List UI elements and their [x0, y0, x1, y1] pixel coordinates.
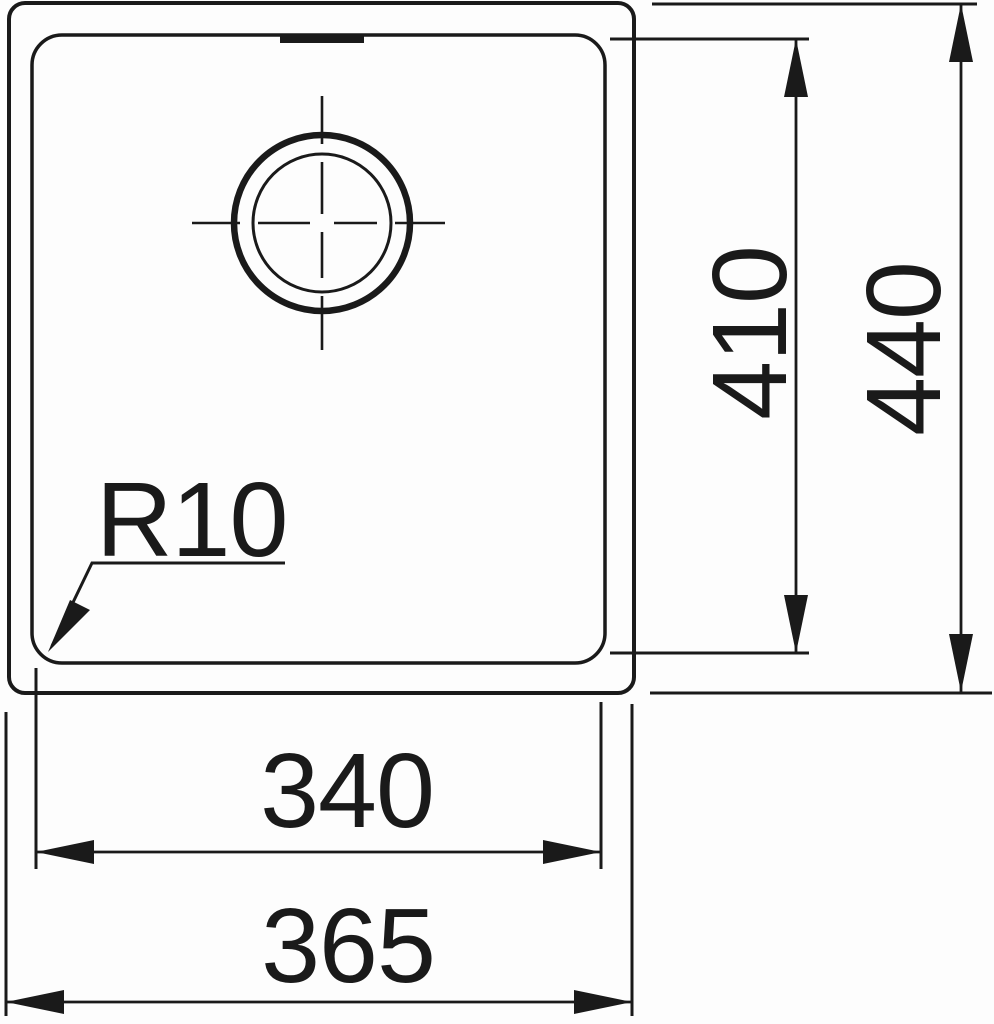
- dimension-label-outer-width: 365: [261, 887, 435, 1005]
- technical-drawing-canvas: 410 440 340 365 R10: [0, 0, 994, 1024]
- radius-callout: R10: [48, 461, 287, 652]
- arrowhead-down-410: [784, 595, 808, 653]
- dimension-inner-height: 410: [610, 39, 809, 653]
- arrowhead-up-410: [784, 39, 808, 97]
- radius-leader-arrowhead: [48, 600, 90, 652]
- dimension-inner-width: 340: [36, 668, 601, 869]
- overflow-mark: [280, 34, 364, 43]
- arrowhead-right-365: [574, 990, 632, 1014]
- dimension-label-inner-height: 410: [691, 246, 809, 420]
- arrowhead-left-365: [6, 990, 64, 1014]
- arrowhead-down-440: [949, 634, 973, 692]
- dimension-label-outer-height: 440: [845, 262, 963, 436]
- radius-label: R10: [96, 461, 287, 579]
- dimension-label-inner-width: 340: [260, 732, 434, 850]
- arrowhead-up-440: [949, 4, 973, 62]
- arrowhead-right-340: [543, 840, 601, 864]
- drawing-page: 410 440 340 365 R10: [0, 0, 994, 1024]
- arrowhead-left-340: [36, 840, 94, 864]
